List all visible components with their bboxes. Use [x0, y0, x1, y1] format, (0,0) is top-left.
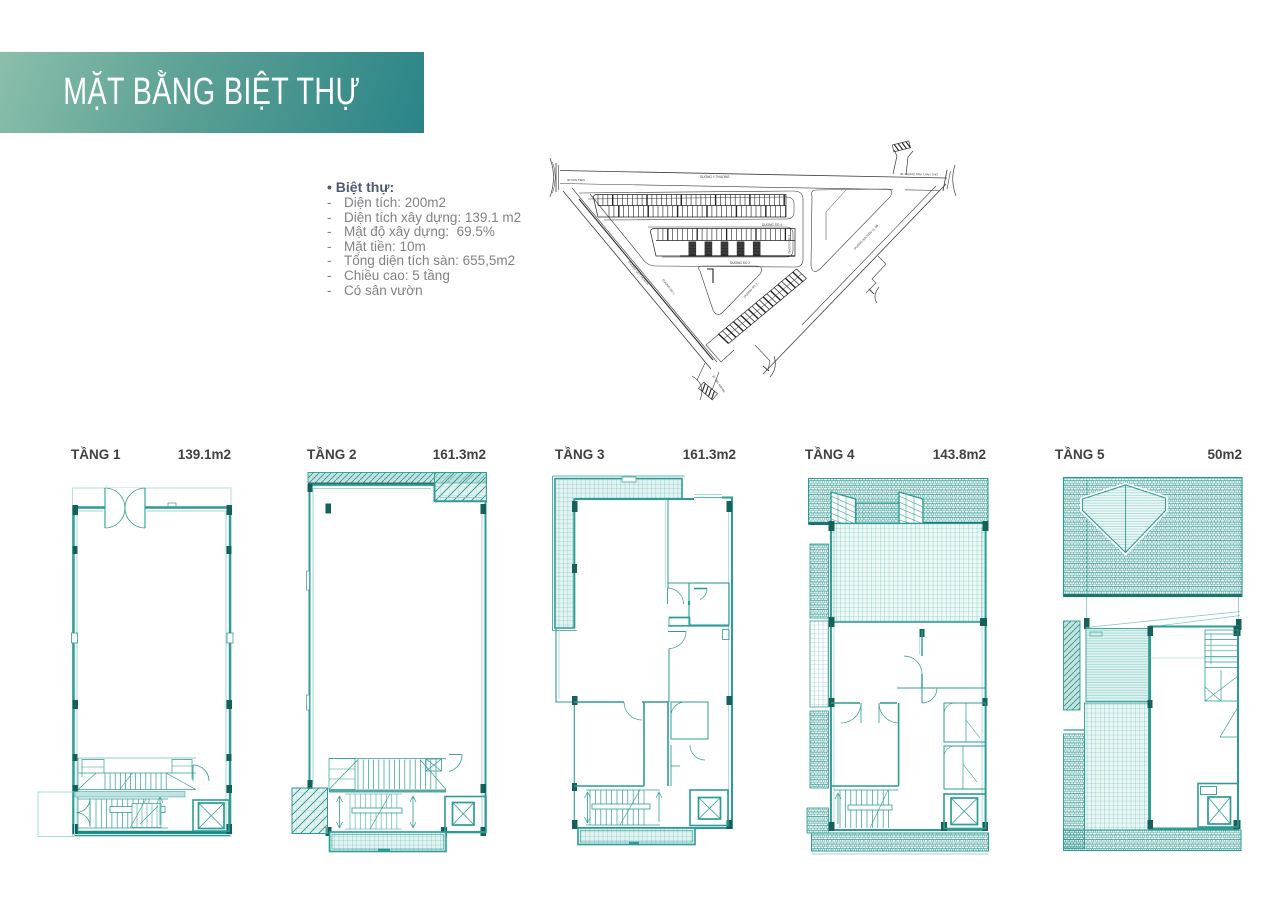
- svg-text:DUONG SO 1: DUONG SO 1: [661, 278, 676, 296]
- svg-text:DUONG Y THUONG: DUONG Y THUONG: [700, 175, 730, 179]
- svg-text:30 VAN TIEN: 30 VAN TIEN: [567, 178, 585, 182]
- svg-text:1 SO DUONG: 1 SO DUONG: [787, 235, 792, 255]
- svg-text:DUONG NGUYEN VL 5B: DUONG NGUYEN VL 5B: [853, 224, 879, 251]
- svg-text:DUONG SO 3: DUONG SO 3: [743, 282, 759, 299]
- svg-text:DUONG SO 2: DUONG SO 2: [730, 261, 750, 265]
- svg-text:DUONG SO 4: DUONG SO 4: [762, 223, 782, 227]
